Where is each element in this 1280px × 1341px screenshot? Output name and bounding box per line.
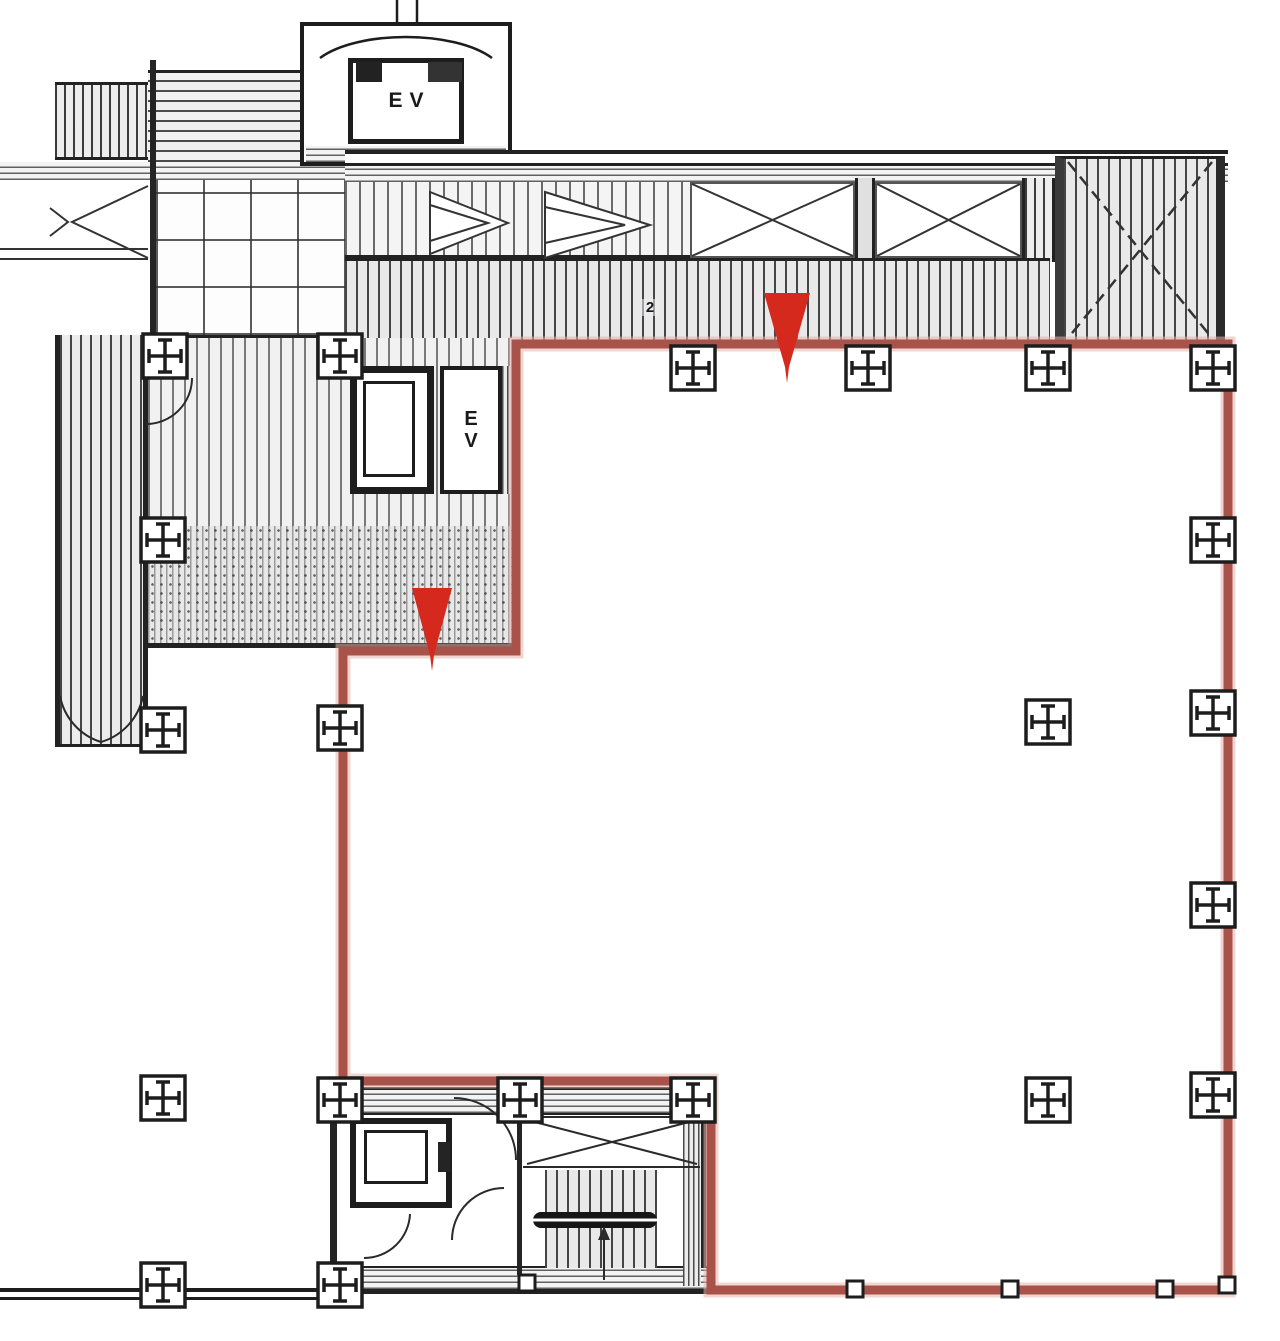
column-marker <box>141 1263 185 1307</box>
escalator-zone <box>345 182 690 258</box>
column-marker <box>1191 883 1235 927</box>
stair-handrail <box>533 1212 657 1228</box>
left-chevron-small <box>50 208 68 236</box>
stair-left-wall <box>517 1115 522 1275</box>
shaft-side-strip <box>502 366 515 494</box>
column-marker <box>671 346 715 390</box>
column-marker <box>1191 1073 1235 1117</box>
column-marker-small <box>847 1281 863 1297</box>
corridor-hatch <box>345 258 1050 344</box>
column-marker <box>141 1076 185 1120</box>
elevator-shaft-mid: E V <box>440 366 502 494</box>
brace-bay-2 <box>875 182 1022 258</box>
floor-plan: EV E V <box>0 0 1280 1341</box>
stair-scissor-line <box>527 1120 697 1164</box>
core-bottom-band <box>337 1266 707 1294</box>
corridor-post-1 <box>855 178 875 262</box>
core-elevator-inner <box>364 1130 428 1184</box>
core-left-wall <box>330 1080 337 1302</box>
column-marker <box>318 706 362 750</box>
core-door-arc <box>364 1214 410 1258</box>
top-left-vertical-hatch <box>55 82 148 160</box>
elevator-mid-label: E V <box>444 370 498 490</box>
lobby-speckle-hatch <box>148 526 515 648</box>
stair-right-strip <box>683 1122 701 1286</box>
elevator-top-label: EV <box>353 63 459 139</box>
elevator-machine-room-mid <box>350 366 434 494</box>
stair-scissor-line <box>527 1120 697 1164</box>
elevator-car-top: EV <box>348 58 464 144</box>
left-balcony-strip <box>55 335 148 747</box>
core-elevator-outer <box>350 1118 452 1208</box>
left-corridor-lines <box>0 248 148 260</box>
core-elevator-door-jamb <box>438 1142 450 1172</box>
grid-room <box>156 180 345 338</box>
bottom-left-wall <box>0 1288 335 1300</box>
column-marker-small <box>1157 1281 1173 1297</box>
column-marker <box>1191 691 1235 735</box>
left-corridor-band <box>0 162 345 180</box>
column-marker <box>1026 346 1070 390</box>
top-right-block <box>1055 156 1225 344</box>
column-marker <box>1026 700 1070 744</box>
column-marker <box>1191 518 1235 562</box>
core-door-arc <box>452 1188 504 1240</box>
column-marker-small <box>1219 1277 1235 1293</box>
column-marker <box>1026 1078 1070 1122</box>
column-marker-small <box>1002 1281 1018 1297</box>
column-marker <box>846 346 890 390</box>
core-top-band <box>337 1087 707 1115</box>
grid-note-label: 2 <box>641 299 659 316</box>
elevator-machine-inner <box>363 381 415 477</box>
column-marker <box>1191 346 1235 390</box>
corridor-post-2 <box>1022 178 1055 262</box>
brace-bay-1 <box>690 182 855 258</box>
